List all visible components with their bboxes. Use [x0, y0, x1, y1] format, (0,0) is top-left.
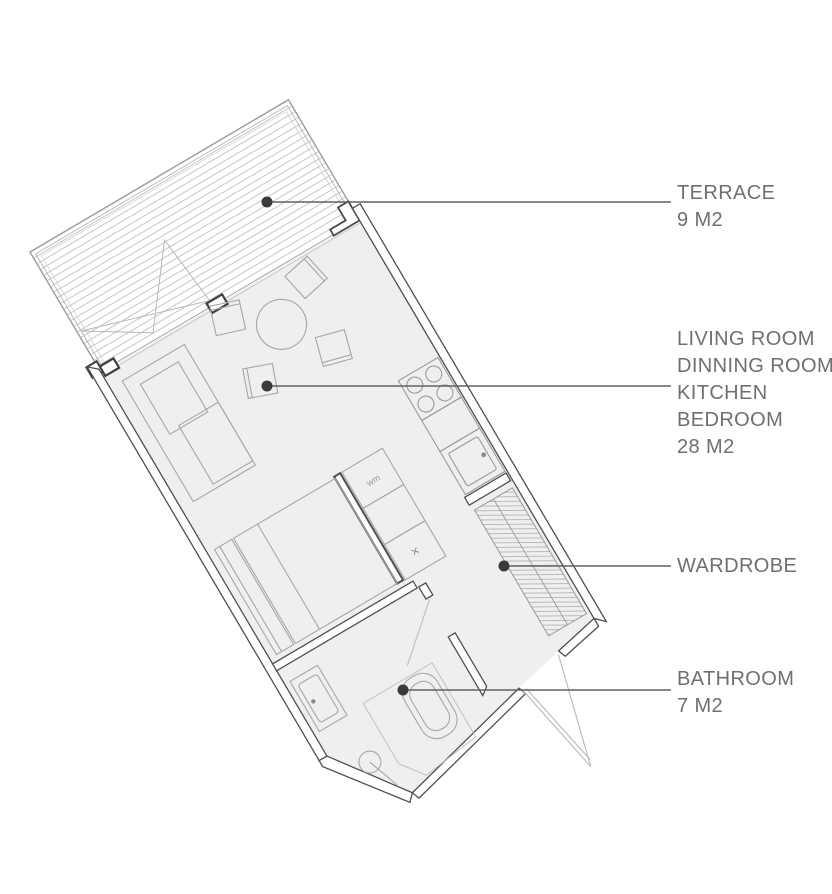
leader-dot-wardrobe [499, 561, 510, 572]
label-living-line: DINNING ROOM [677, 353, 832, 380]
floor-plan-page: wm × [0, 0, 832, 894]
label-bathroom-area: 7 M2 [677, 693, 794, 720]
label-living-line: LIVING ROOM [677, 326, 832, 353]
label-bathroom-name: BATHROOM [677, 666, 794, 693]
label-living: LIVING ROOM DINNING ROOM KITCHEN BEDROOM… [677, 326, 832, 461]
label-terrace: TERRACE 9 M2 [677, 180, 775, 234]
apartment-plan: wm × [21, 95, 665, 884]
label-living-area: 28 M2 [677, 434, 832, 461]
leader-dot-living [262, 381, 273, 392]
label-wardrobe: WARDROBE [677, 553, 797, 580]
label-living-line: KITCHEN [677, 380, 832, 407]
label-terrace-name: TERRACE [677, 180, 775, 207]
label-wardrobe-name: WARDROBE [677, 553, 797, 580]
label-living-line: BEDROOM [677, 407, 832, 434]
leader-dot-terrace [262, 197, 273, 208]
label-bathroom: BATHROOM 7 M2 [677, 666, 794, 720]
label-terrace-area: 9 M2 [677, 207, 775, 234]
leader-dot-bathroom [398, 685, 409, 696]
